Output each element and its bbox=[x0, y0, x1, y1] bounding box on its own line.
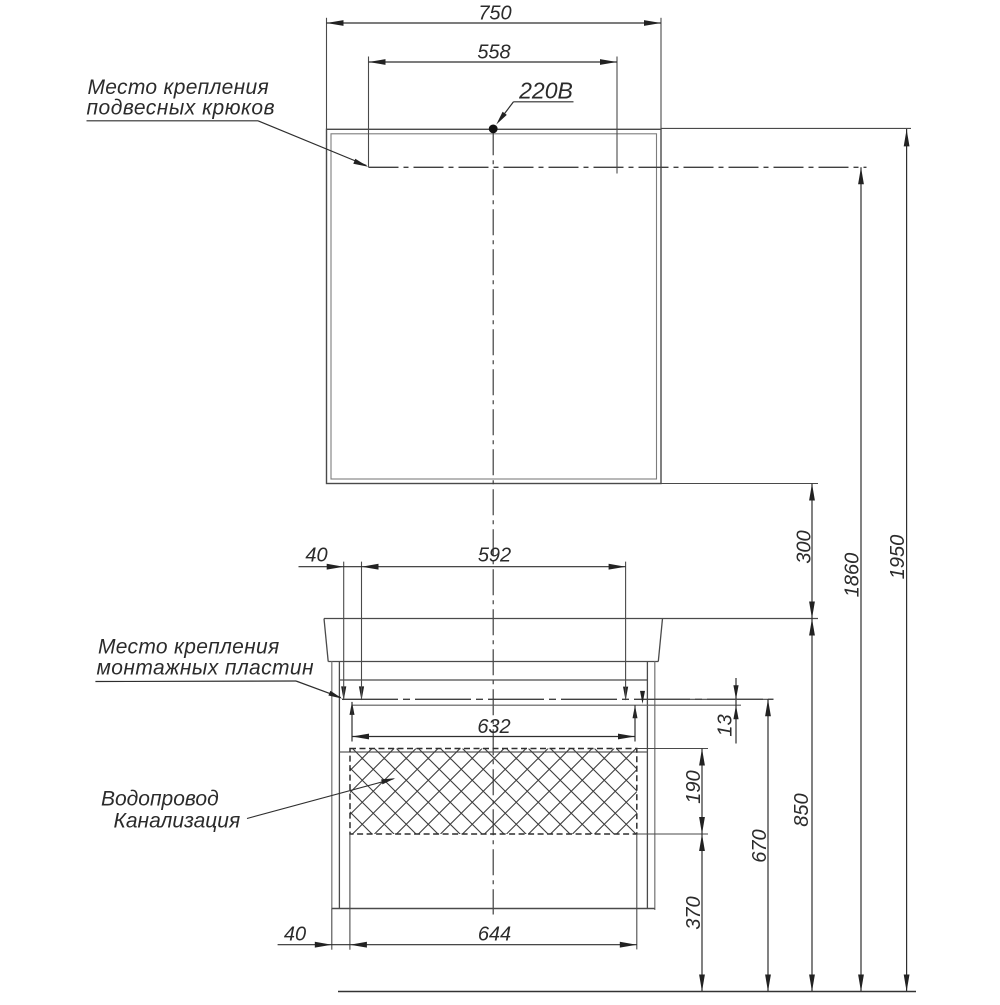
svg-text:13: 13 bbox=[715, 714, 737, 736]
svg-text:670: 670 bbox=[749, 829, 771, 862]
svg-text:750: 750 bbox=[478, 3, 511, 25]
svg-text:370: 370 bbox=[683, 896, 705, 929]
svg-text:632: 632 bbox=[477, 716, 510, 738]
svg-text:1860: 1860 bbox=[842, 553, 864, 598]
svg-text:644: 644 bbox=[478, 924, 511, 946]
svg-text:1950: 1950 bbox=[887, 535, 909, 580]
svg-text:40: 40 bbox=[305, 545, 327, 567]
svg-text:40: 40 bbox=[284, 924, 306, 946]
svg-text:190: 190 bbox=[683, 770, 705, 803]
svg-text:Канализация: Канализация bbox=[114, 810, 241, 833]
svg-text:подвесных крюков: подвесных крюков bbox=[87, 96, 276, 119]
svg-text:592: 592 bbox=[478, 545, 511, 567]
svg-text:монтажных пластин: монтажных пластин bbox=[97, 657, 315, 680]
svg-text:Место крепления: Место крепления bbox=[98, 636, 280, 659]
svg-text:558: 558 bbox=[477, 42, 510, 64]
svg-text:850: 850 bbox=[791, 793, 813, 826]
svg-text:300: 300 bbox=[794, 530, 816, 563]
svg-text:Водопровод: Водопровод bbox=[101, 788, 219, 811]
svg-text:220В: 220В bbox=[518, 78, 573, 104]
